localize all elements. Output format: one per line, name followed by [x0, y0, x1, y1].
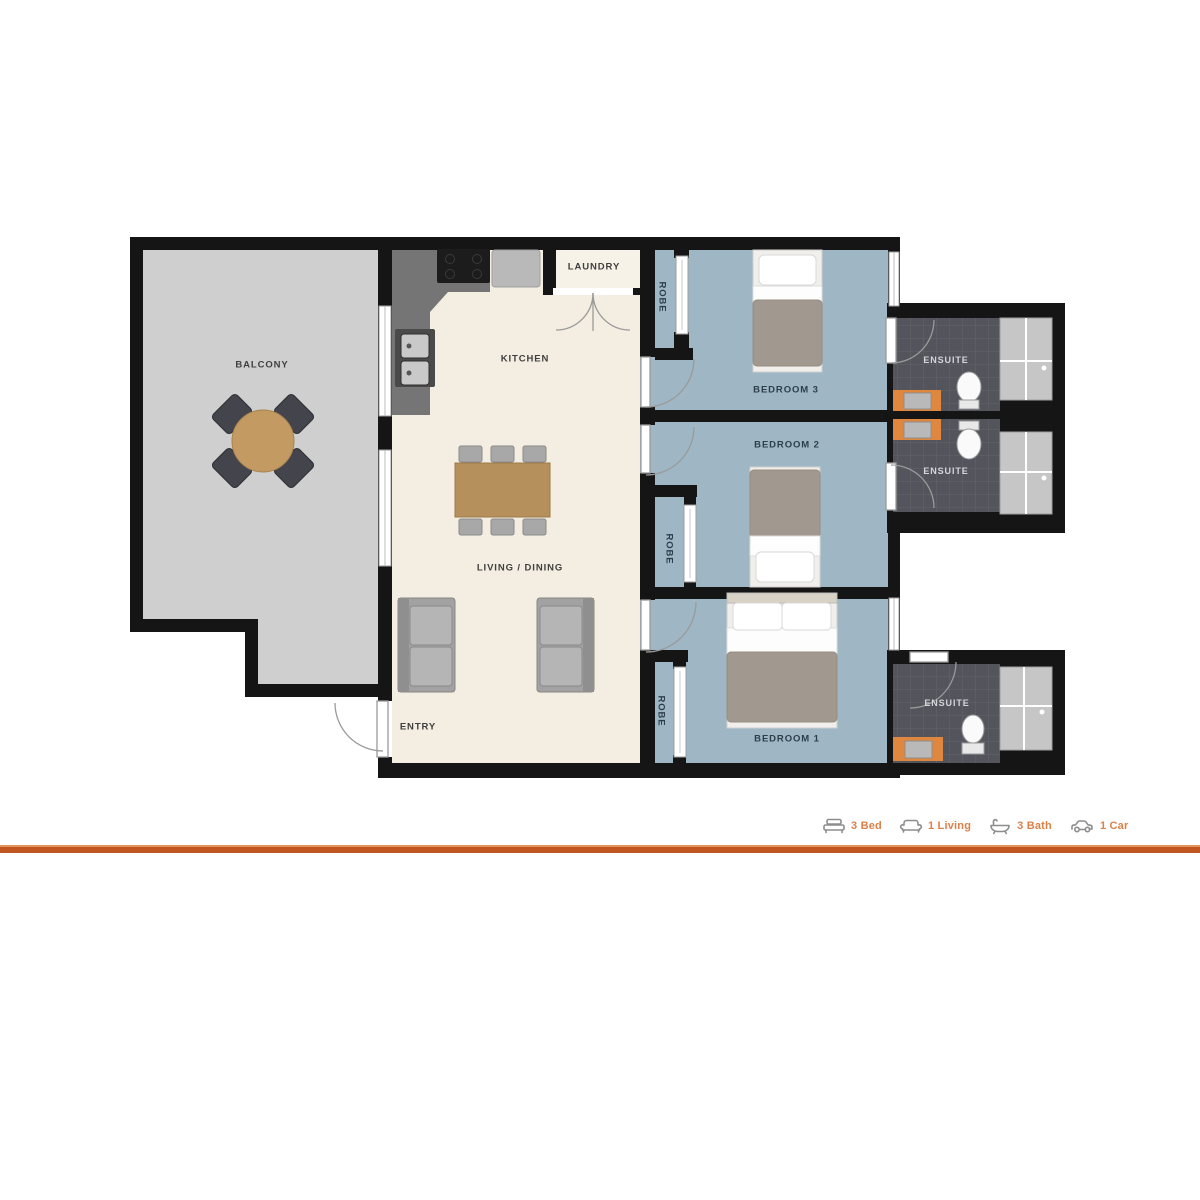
laundry-label: LAUNDRY [568, 262, 620, 273]
sink-icon [395, 329, 435, 387]
bath-icon [988, 817, 1012, 835]
vanity [893, 737, 943, 761]
bed-icon [822, 817, 846, 835]
ensuite-block-upper [887, 303, 1065, 533]
sofa [398, 598, 455, 692]
legend-item-living: 1 Living [899, 817, 971, 835]
window [379, 450, 391, 566]
floorplan-drawing [0, 0, 1200, 1200]
legend: 3 Bed 1 Living 3 Bath 1 Car [822, 817, 1129, 835]
legend-living-label: 1 Living [928, 820, 971, 832]
window [889, 598, 899, 650]
robe1-label: ROBE [656, 695, 667, 726]
entry-label: ENTRY [400, 722, 436, 733]
sofa [537, 598, 594, 692]
dining-set [455, 446, 550, 535]
legend-bath-label: 3 Bath [1017, 820, 1052, 832]
bed-double-bedroom1 [727, 593, 837, 728]
shower [1000, 667, 1052, 750]
robe3-label: ROBE [657, 281, 668, 312]
legend-car-label: 1 Car [1100, 820, 1129, 832]
ensuite-block-lower [887, 650, 1065, 775]
legend-item-car: 1 Car [1069, 817, 1129, 835]
window [379, 306, 391, 416]
dining-table [455, 463, 550, 517]
robe2-label: ROBE [664, 533, 675, 564]
legend-item-bath: 3 Bath [988, 817, 1052, 835]
kitchen-label: KITCHEN [501, 354, 550, 365]
bedroom2-label: BEDROOM 2 [754, 440, 820, 451]
ensuite2-label: ENSUITE [923, 466, 968, 476]
bedroom3-label: BEDROOM 3 [753, 385, 819, 396]
cooktop-icon [437, 249, 490, 283]
shower [1000, 432, 1052, 514]
bedroom1-label: BEDROOM 1 [754, 734, 820, 745]
balcony-label: BALCONY [235, 360, 288, 371]
living-dining-label: LIVING / DINING [477, 563, 563, 574]
shower [1000, 318, 1052, 400]
window [889, 252, 899, 306]
bed-single-bedroom3 [753, 250, 822, 372]
sofa-icon [899, 817, 923, 835]
legend-item-bed: 3 Bed [822, 817, 882, 835]
toilet-icon [962, 715, 984, 754]
bed-single-bedroom2 [750, 467, 820, 587]
legend-bed-label: 3 Bed [851, 820, 882, 832]
ensuite3-label: ENSUITE [923, 355, 968, 365]
accent-divider-line [0, 845, 1200, 853]
balcony-table [232, 410, 294, 472]
entry-door [335, 701, 392, 757]
car-icon [1069, 817, 1095, 835]
floorplan-page: BALCONY KITCHEN LAUNDRY LIVING / DINING … [0, 0, 1200, 1200]
ensuite1-label: ENSUITE [924, 698, 969, 708]
fridge [492, 250, 540, 287]
